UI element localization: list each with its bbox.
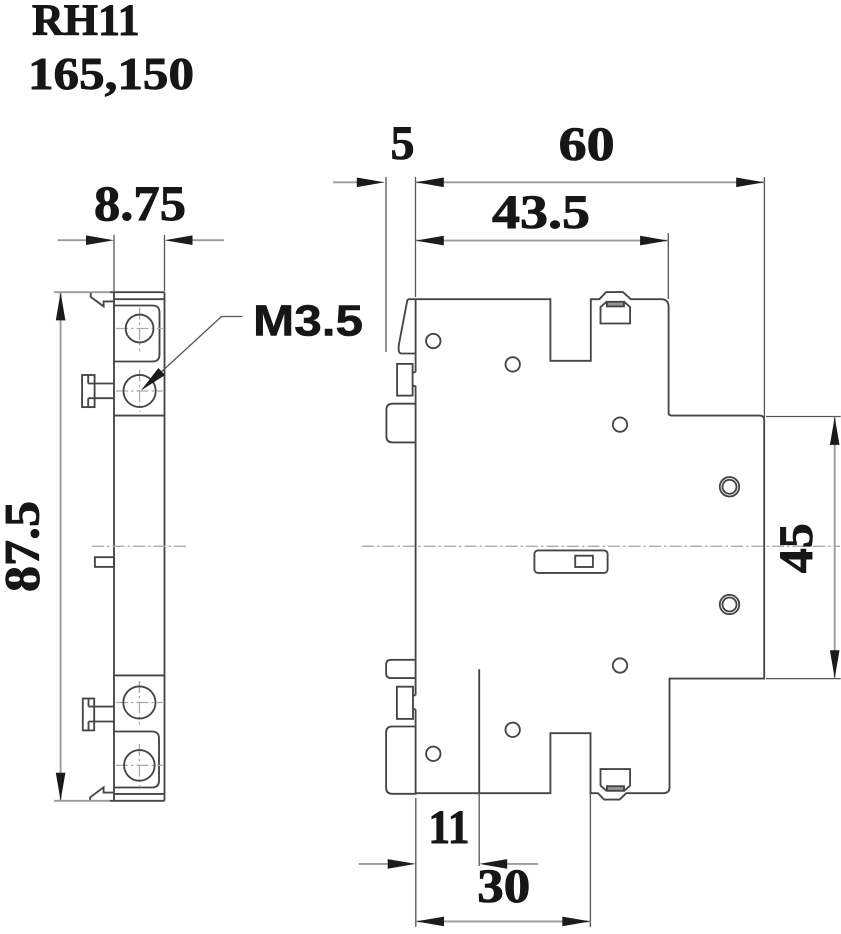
- svg-text:43.5: 43.5: [492, 186, 590, 239]
- svg-text:45: 45: [770, 523, 823, 573]
- svg-text:11: 11: [428, 801, 469, 854]
- svg-text:60: 60: [559, 118, 615, 171]
- svg-text:RH11: RH11: [32, 0, 140, 45]
- svg-text:M3.5: M3.5: [253, 296, 363, 345]
- svg-text:30: 30: [477, 860, 530, 913]
- svg-text:8.75: 8.75: [94, 175, 186, 231]
- svg-text:165,150: 165,150: [28, 48, 194, 99]
- svg-text:5: 5: [391, 117, 415, 170]
- svg-text:87.5: 87.5: [0, 501, 50, 592]
